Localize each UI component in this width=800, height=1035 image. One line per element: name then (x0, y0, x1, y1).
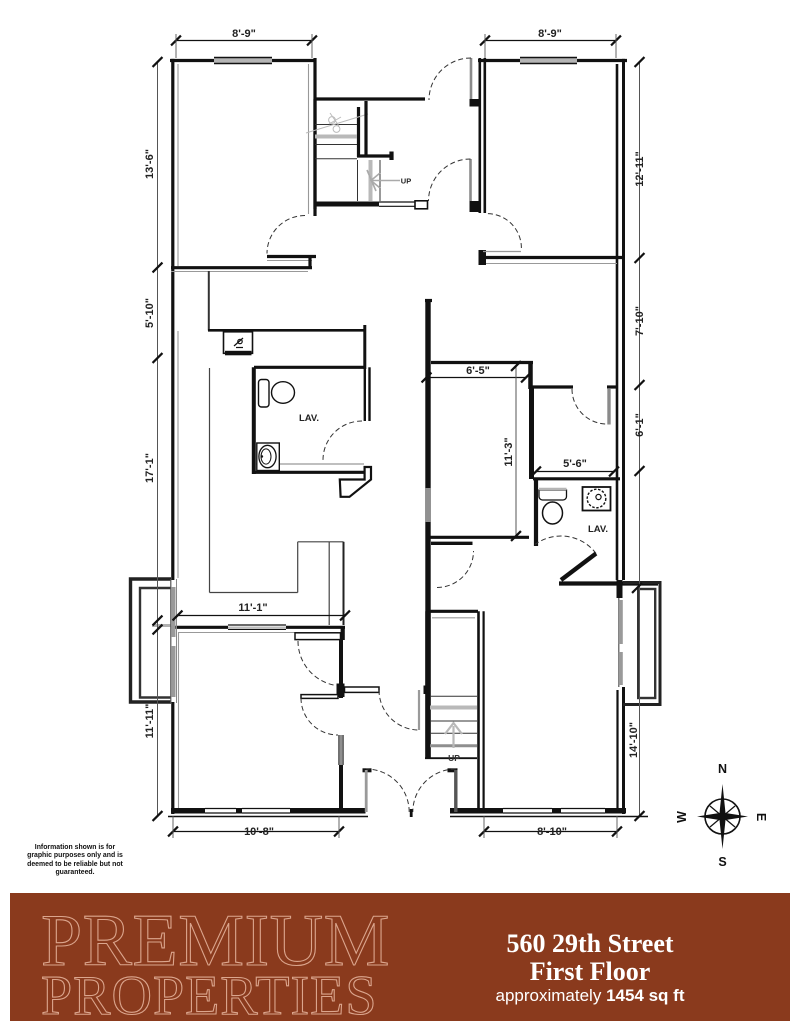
svg-text:S: S (718, 855, 726, 869)
svg-text:UP: UP (401, 177, 411, 186)
svg-text:8'-9": 8'-9" (232, 28, 256, 40)
svg-text:LAV.: LAV. (299, 413, 319, 424)
svg-text:17'-1": 17'-1" (144, 453, 156, 483)
svg-text:8'-10": 8'-10" (537, 826, 567, 838)
svg-text:11'-3": 11'-3" (503, 437, 515, 466)
svg-text:10'-8": 10'-8" (244, 826, 274, 838)
svg-text:13'-6": 13'-6" (144, 149, 156, 179)
svg-text:14'-10": 14'-10" (628, 722, 640, 758)
svg-text:7'-10": 7'-10" (634, 306, 646, 336)
svg-text:6'-5": 6'-5" (466, 365, 490, 377)
svg-text:5'-10": 5'-10" (144, 298, 156, 328)
svg-text:11'-1": 11'-1" (238, 602, 267, 614)
svg-text:6'-1": 6'-1" (634, 413, 646, 437)
svg-text:12'-11": 12'-11" (634, 151, 646, 186)
svg-text:UP: UP (448, 753, 460, 763)
svg-text:W: W (675, 811, 689, 823)
svg-text:E: E (754, 813, 768, 821)
svg-text:LAV.: LAV. (588, 524, 608, 535)
svg-text:5'-6": 5'-6" (563, 458, 587, 470)
svg-text:N: N (718, 762, 727, 776)
svg-text:11'-11": 11'-11" (144, 704, 156, 739)
svg-text:8'-9": 8'-9" (538, 28, 562, 40)
